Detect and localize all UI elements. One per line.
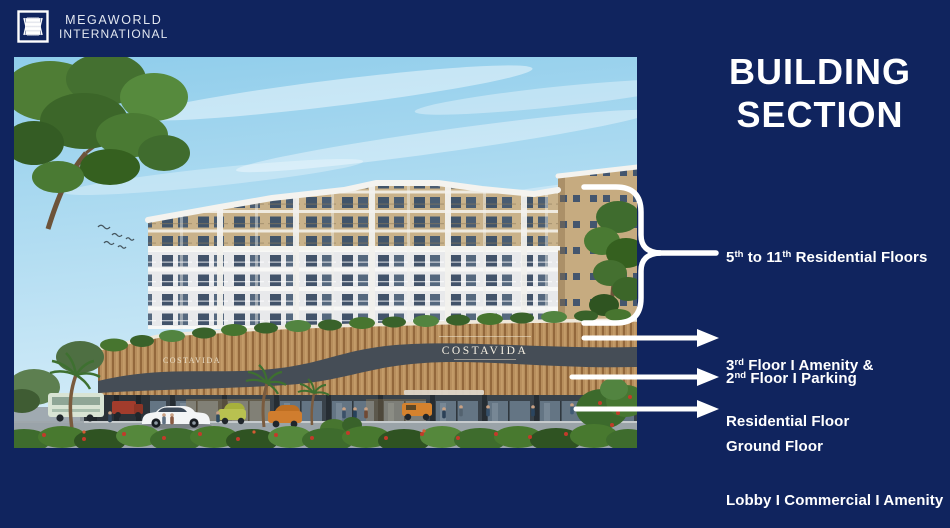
ordinal-suffix: nd — [734, 370, 746, 381]
label-text: Residential Floors — [791, 249, 927, 266]
brand-name-line2: INTERNATIONAL — [59, 27, 168, 41]
sign-text-center: COSTAVIDA — [442, 345, 529, 357]
page-title: BUILDING SECTION — [700, 50, 940, 136]
ordinal-suffix: th — [782, 249, 791, 260]
ordinal-suffix: rd — [734, 357, 744, 368]
building-rendering: COSTAVIDA COSTAVIDA — [14, 57, 637, 448]
megaworld-logo-icon — [17, 10, 49, 43]
building-render-image: COSTAVIDA COSTAVIDA — [14, 57, 637, 448]
label-parking-floor: 2nd Floor I Parking — [726, 370, 857, 390]
label-ground-floor: Ground Floor Lobby I Commercial I Amenit… — [726, 402, 943, 528]
label-line: Ground Floor — [726, 438, 943, 456]
label-text: to 11 — [743, 249, 782, 266]
brand-wordmark: MEGAWORLD INTERNATIONAL — [59, 13, 168, 41]
ordinal-suffix: th — [734, 249, 743, 260]
brand-header: MEGAWORLD INTERNATIONAL — [17, 10, 168, 43]
label-residential-floors: 5th to 11th Residential Floors — [726, 249, 927, 269]
label-text: Floor I Parking — [746, 370, 857, 387]
page-title-line1: BUILDING — [700, 50, 940, 93]
sign-text-left: COSTAVIDA — [163, 356, 221, 365]
brand-name-line1: MEGAWORLD — [59, 13, 168, 27]
page-title-line2: SECTION — [700, 93, 940, 136]
